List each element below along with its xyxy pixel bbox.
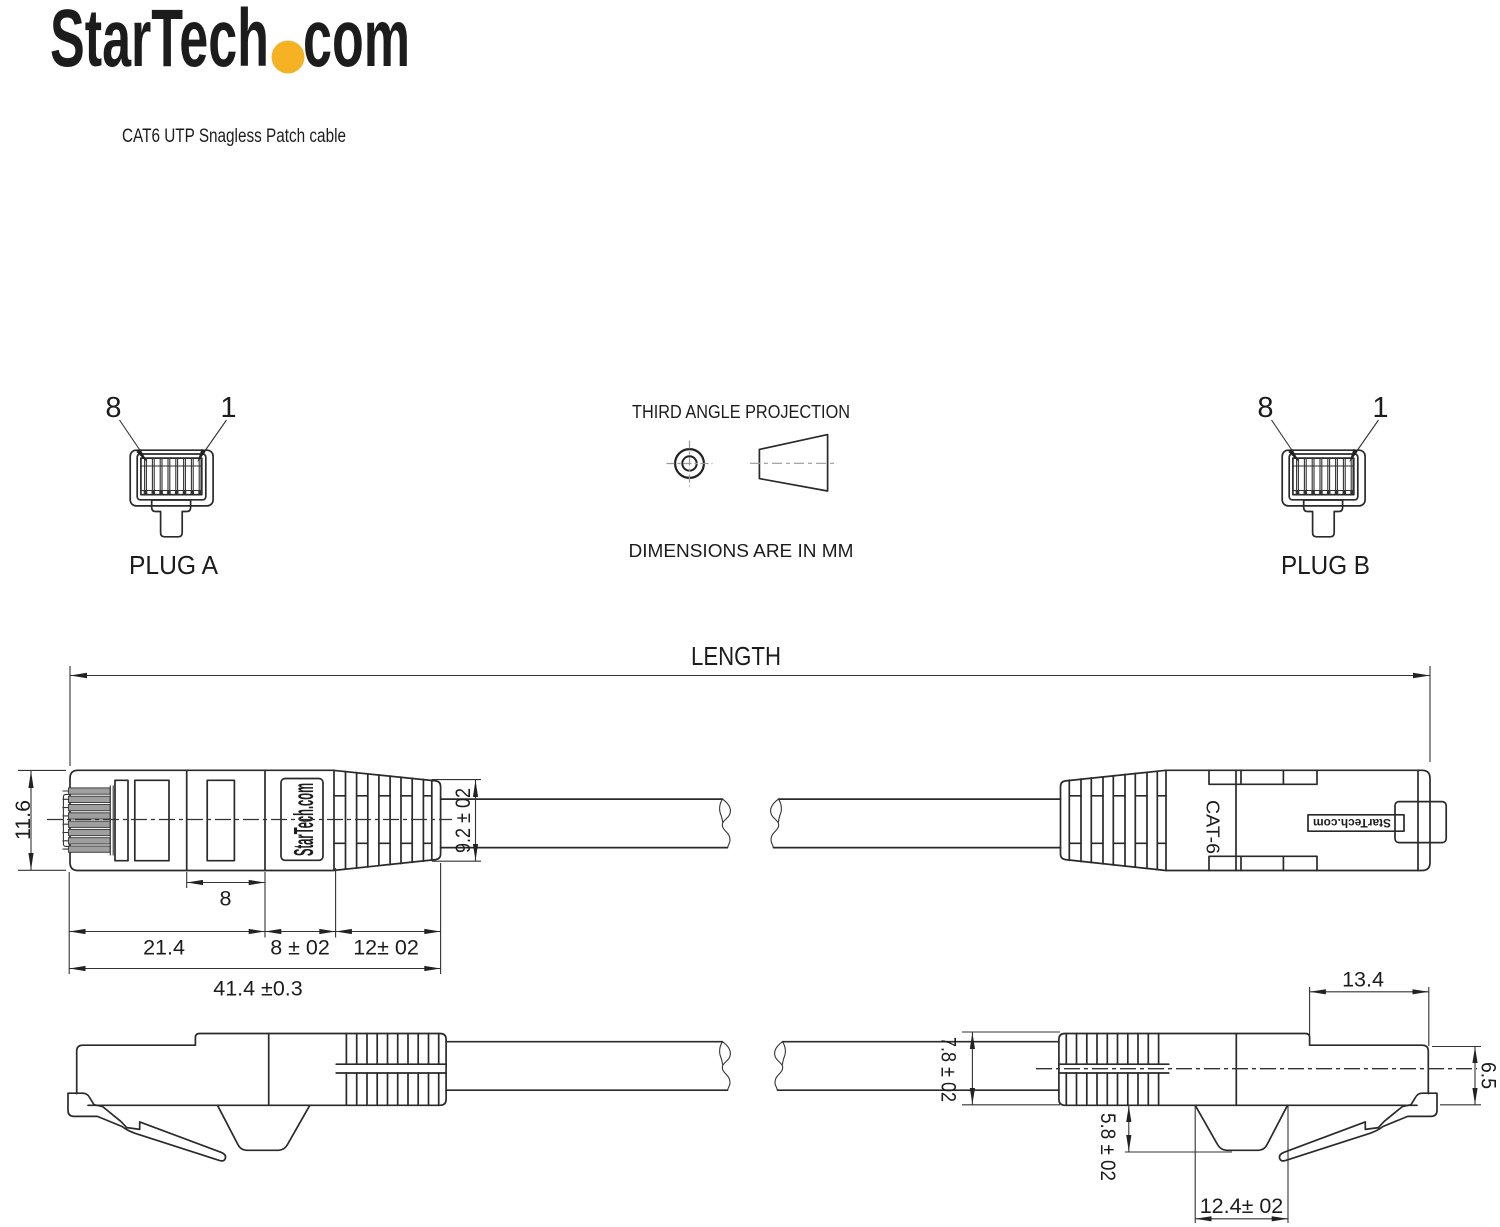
svg-text:StarTech: StarTech [50, 0, 269, 84]
svg-text:THIRD ANGLE PROJECTION: THIRD ANGLE PROJECTION [632, 401, 850, 422]
svg-text:1: 1 [220, 392, 236, 424]
svg-text:CAT-6: CAT-6 [1203, 800, 1224, 854]
svg-text:8: 8 [220, 887, 232, 911]
svg-text:41.4 ±0.3: 41.4 ±0.3 [213, 977, 303, 1001]
svg-text:StarTech.com: StarTech.com [1313, 816, 1391, 830]
svg-text:LENGTH: LENGTH [691, 641, 781, 671]
svg-text:21.4: 21.4 [143, 936, 185, 960]
svg-text:11.6: 11.6 [11, 800, 35, 840]
svg-text:13.4: 13.4 [1342, 968, 1384, 992]
svg-text:5.8 ± 02: 5.8 ± 02 [1096, 1113, 1120, 1181]
svg-text:DIMENSIONS ARE IN MM: DIMENSIONS ARE IN MM [629, 540, 854, 561]
svg-text:12.4± 02: 12.4± 02 [1200, 1194, 1284, 1218]
svg-text:9.2 ± 02: 9.2 ± 02 [451, 788, 475, 853]
svg-text:8: 8 [105, 392, 121, 424]
svg-text:8: 8 [1257, 392, 1273, 424]
svg-text:1: 1 [1372, 392, 1388, 424]
svg-text:PLUG A: PLUG A [129, 550, 219, 580]
svg-text:12± 02: 12± 02 [353, 936, 419, 960]
svg-text:PLUG B: PLUG B [1281, 550, 1370, 580]
svg-text:7.8 ± 02: 7.8 ± 02 [937, 1037, 961, 1102]
svg-text:com: com [303, 0, 410, 84]
svg-text:6.5: 6.5 [1477, 1062, 1500, 1089]
svg-text:CAT6 UTP Snagless Patch cable: CAT6 UTP Snagless Patch cable [122, 126, 346, 147]
svg-text:8 ± 02: 8 ± 02 [270, 936, 330, 960]
